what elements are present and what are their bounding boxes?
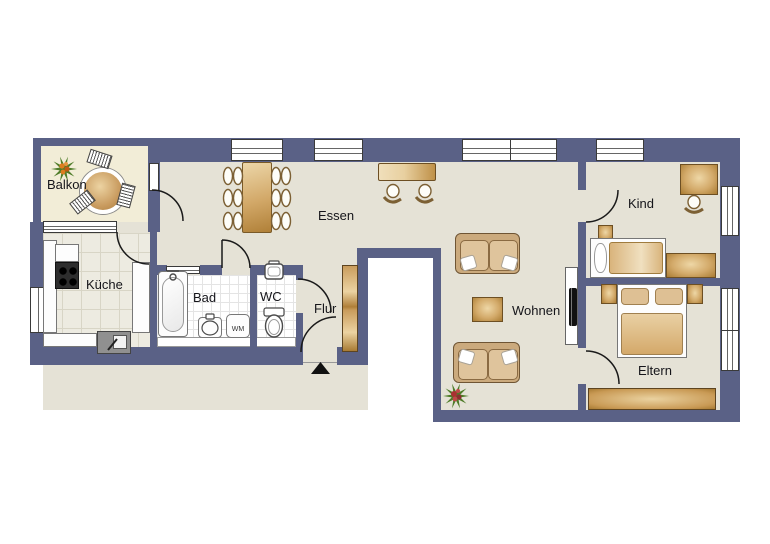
wall-void-right xyxy=(433,248,441,422)
room-label-balkon: Balkon xyxy=(47,177,87,192)
wall-void-top xyxy=(357,248,441,258)
room-label-kueche: Küche xyxy=(86,277,123,292)
nightstand-right xyxy=(687,284,703,304)
wall-balcony-top xyxy=(33,138,160,146)
wall-wc-flur-b xyxy=(296,313,303,347)
kitchen-counter-bottom xyxy=(43,333,97,347)
wall-void-left xyxy=(357,248,368,365)
kitchen-sink-basin xyxy=(113,335,127,349)
wall-wc-flur-a xyxy=(296,275,303,280)
flur-cabinet xyxy=(342,265,358,352)
dining-table xyxy=(242,162,272,233)
tv xyxy=(569,288,577,326)
wall-bottom-right xyxy=(433,410,740,422)
room-label-eltern: Eltern xyxy=(638,363,672,378)
sofa-bottom xyxy=(453,342,520,383)
window-kind-right xyxy=(721,186,739,236)
eltern-pillow-right xyxy=(655,288,683,305)
washing-machine: WM xyxy=(226,314,250,338)
washing-machine-label: WM xyxy=(232,326,244,333)
eltern-blanket xyxy=(621,313,683,355)
window-essen-1 xyxy=(231,139,283,161)
nightstand-left xyxy=(601,284,617,304)
bad-basin xyxy=(198,317,222,338)
wall-bad-wc-sep xyxy=(250,275,257,347)
entrance-threshold xyxy=(303,347,337,363)
kind-bed-pillow xyxy=(594,243,607,273)
room-label-wc: WC xyxy=(260,289,282,304)
stove xyxy=(55,262,79,289)
window-balcony-kitchen xyxy=(43,221,117,233)
room-label-wohnen: Wohnen xyxy=(512,303,560,318)
bath-ledge xyxy=(157,337,296,347)
wall-wohnen-sep-c xyxy=(578,384,586,410)
wall-wohnen-sep-b xyxy=(578,222,586,348)
room-label-essen: Essen xyxy=(318,208,354,223)
coffee-table xyxy=(472,297,503,322)
room-label-flur: Flur xyxy=(314,301,336,316)
kind-desk xyxy=(680,164,718,195)
window-essen-2 xyxy=(314,139,363,161)
wall-right xyxy=(720,138,740,422)
wall-bad-top-b xyxy=(200,265,222,275)
kind-bed-blanket xyxy=(609,242,663,274)
window-wohnen xyxy=(462,139,557,161)
window-eltern-right xyxy=(721,288,739,371)
eltern-wardrobe xyxy=(588,388,716,410)
kind-dresser xyxy=(666,253,716,278)
eltern-pillow-left xyxy=(621,288,649,305)
wall-balcony-left xyxy=(33,138,41,230)
window-kind-top xyxy=(596,139,644,161)
essen-sideboard xyxy=(378,163,436,181)
room-label-kind: Kind xyxy=(628,196,654,211)
balcony-door-panel xyxy=(149,163,159,191)
stairwell-void xyxy=(368,258,433,422)
sofa-top xyxy=(455,233,520,274)
kitchen-counter-topleft xyxy=(55,244,79,262)
wall-kitchen-sep xyxy=(150,232,157,347)
bathtub-inner xyxy=(162,277,184,332)
wall-bottom-left xyxy=(30,347,303,365)
wall-wohnen-sep-a xyxy=(578,162,586,190)
floor-plan: WM Balkon Küche Bad WC Flur Essen Wohnen… xyxy=(0,0,770,544)
wall-bad-top-c xyxy=(250,265,303,275)
room-label-bad: Bad xyxy=(193,290,216,305)
kitchen-counter-right xyxy=(132,262,150,333)
